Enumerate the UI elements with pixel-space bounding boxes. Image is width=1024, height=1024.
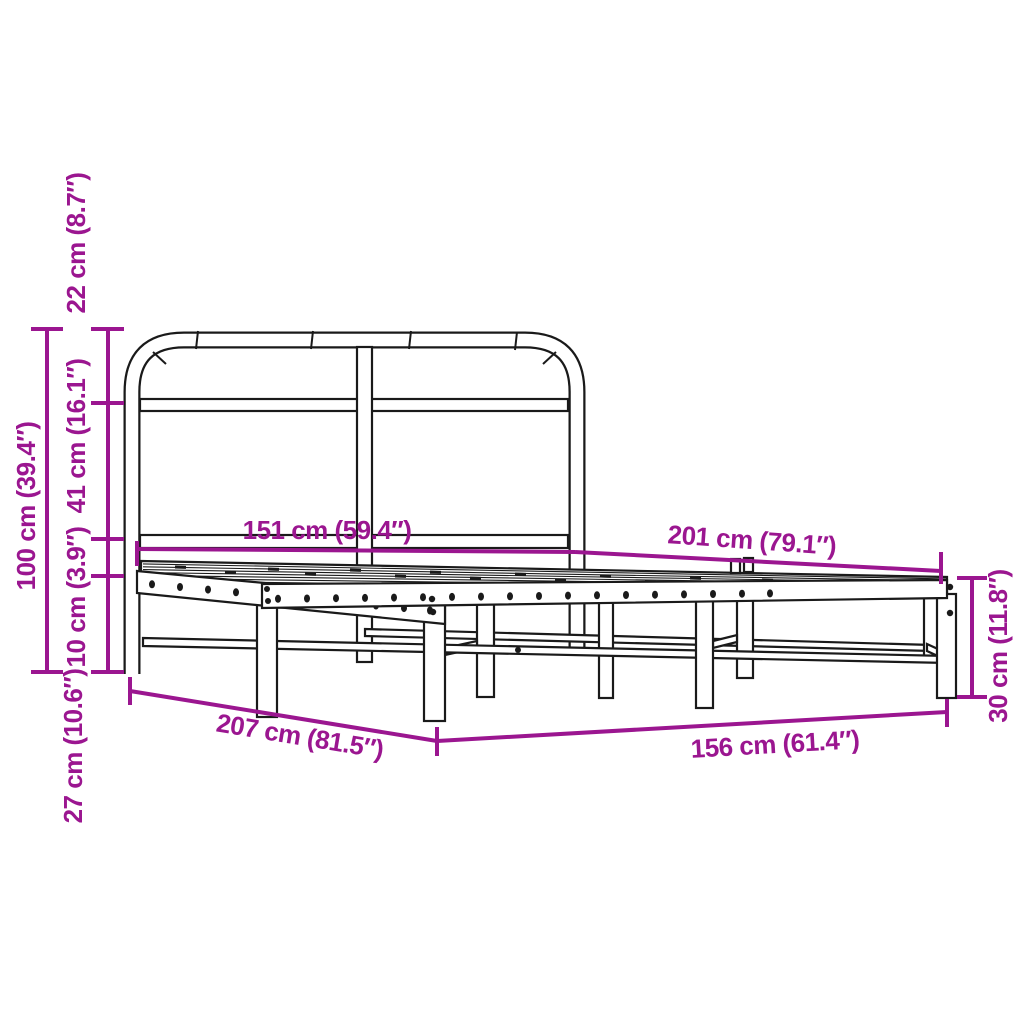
label-height-10: 10 cm (3.9″) xyxy=(61,527,91,668)
stretcher-bolt xyxy=(515,647,521,653)
dimension-labels: 22 cm (8.7″) 41 cm (16.1″) 10 cm (3.9″) … xyxy=(11,173,1013,824)
label-width-156: 156 cm (61.4″) xyxy=(690,724,860,764)
leg-far-2 xyxy=(737,590,753,678)
bed-frame-dimension-diagram: 22 cm (8.7″) 41 cm (16.1″) 10 cm (3.9″) … xyxy=(0,0,1024,1024)
leg-mid xyxy=(599,596,613,698)
leg-foot-right xyxy=(937,594,956,698)
label-height-30: 30 cm (11.8″) xyxy=(983,569,1013,722)
label-length-207: 207 cm (81.5″) xyxy=(214,708,385,765)
label-height-41: 41 cm (16.1″) xyxy=(61,359,91,514)
leg-front-3 xyxy=(696,598,713,708)
label-height-27: 27 cm (10.6″) xyxy=(58,669,88,824)
label-width-151: 151 cm (59.4″) xyxy=(243,515,412,545)
leg-front-1 xyxy=(257,596,277,717)
side-rail xyxy=(262,580,947,608)
dim-line-height-stack xyxy=(91,329,124,672)
label-height-100: 100 cm (39.4″) xyxy=(11,422,41,591)
label-height-22: 22 cm (8.7″) xyxy=(61,173,91,314)
headboard-frame xyxy=(132,331,577,674)
label-length-201: 201 cm (79.1″) xyxy=(667,519,837,561)
diagram-canvas: 22 cm (8.7″) 41 cm (16.1″) 10 cm (3.9″) … xyxy=(0,0,1024,1024)
headboard-crossbar xyxy=(140,399,568,411)
